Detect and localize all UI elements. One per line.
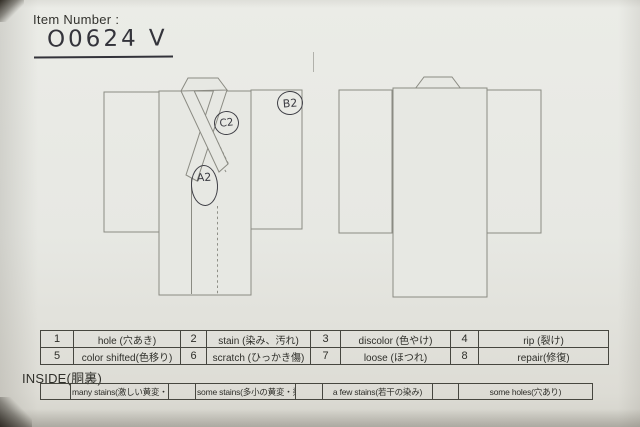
code-cell: 6 xyxy=(181,348,207,365)
back-right-sleeve xyxy=(486,90,541,233)
table-row: 1 hole (穴あき) 2 stain (染み、汚れ) 3 discolor … xyxy=(41,331,609,348)
annotation-b2-label: B2 xyxy=(282,96,298,110)
front-left-sleeve xyxy=(104,92,159,232)
checkbox-cell xyxy=(41,384,71,400)
back-body xyxy=(393,88,487,297)
annotation-c2-label: C2 xyxy=(219,116,234,129)
code-cell: 2 xyxy=(181,331,207,348)
defect-code-table: 1 hole (穴あき) 2 stain (染み、汚れ) 3 discolor … xyxy=(40,330,609,365)
inside-condition-table: many stains(激しい黄変・染み) some stains(多小の黄変・… xyxy=(40,383,593,400)
label-cell: scratch (ひっかき傷) xyxy=(207,348,311,365)
table-row: many stains(激しい黄変・染み) some stains(多小の黄変・… xyxy=(41,384,593,400)
label-cell: a few stains(若干の染み) xyxy=(323,384,433,400)
item-number-value: O0624 V xyxy=(47,25,168,52)
label-cell: discolor (色やけ) xyxy=(341,331,451,348)
kimono-back-diagram xyxy=(339,77,541,297)
code-cell: 3 xyxy=(311,331,341,348)
label-cell: stain (染み、汚れ) xyxy=(207,331,311,348)
code-cell: 4 xyxy=(451,331,479,348)
front-collar-peak xyxy=(181,78,227,91)
label-cell: hole (穴あき) xyxy=(74,331,181,348)
back-left-sleeve xyxy=(339,90,392,233)
label-cell: repair(修復) xyxy=(479,348,609,365)
annotation-a2-label: A2 xyxy=(196,171,211,185)
code-cell: 8 xyxy=(451,348,479,365)
checkbox-cell xyxy=(296,384,323,400)
back-collar xyxy=(415,77,461,89)
paper-sheet: Item Number : O0624 V A2 C2 xyxy=(0,0,640,427)
checkbox-cell xyxy=(433,384,459,400)
label-cell: rip (裂け) xyxy=(479,331,609,348)
code-cell: 7 xyxy=(311,348,341,365)
label-cell: color shifted(色移り) xyxy=(74,348,181,365)
table-row: 5 color shifted(色移り) 6 scratch (ひっかき傷) 7… xyxy=(41,348,609,365)
label-cell: some holes(穴あり) xyxy=(459,384,593,400)
code-cell: 1 xyxy=(41,331,74,348)
item-number-label: Item Number : xyxy=(33,12,119,27)
label-cell: loose (ほつれ) xyxy=(341,348,451,365)
checkbox-cell xyxy=(169,384,196,400)
code-cell: 5 xyxy=(41,348,74,365)
label-cell: some stains(多小の黄変・染み) xyxy=(196,384,296,400)
label-cell: many stains(激しい黄変・染み) xyxy=(71,384,169,400)
